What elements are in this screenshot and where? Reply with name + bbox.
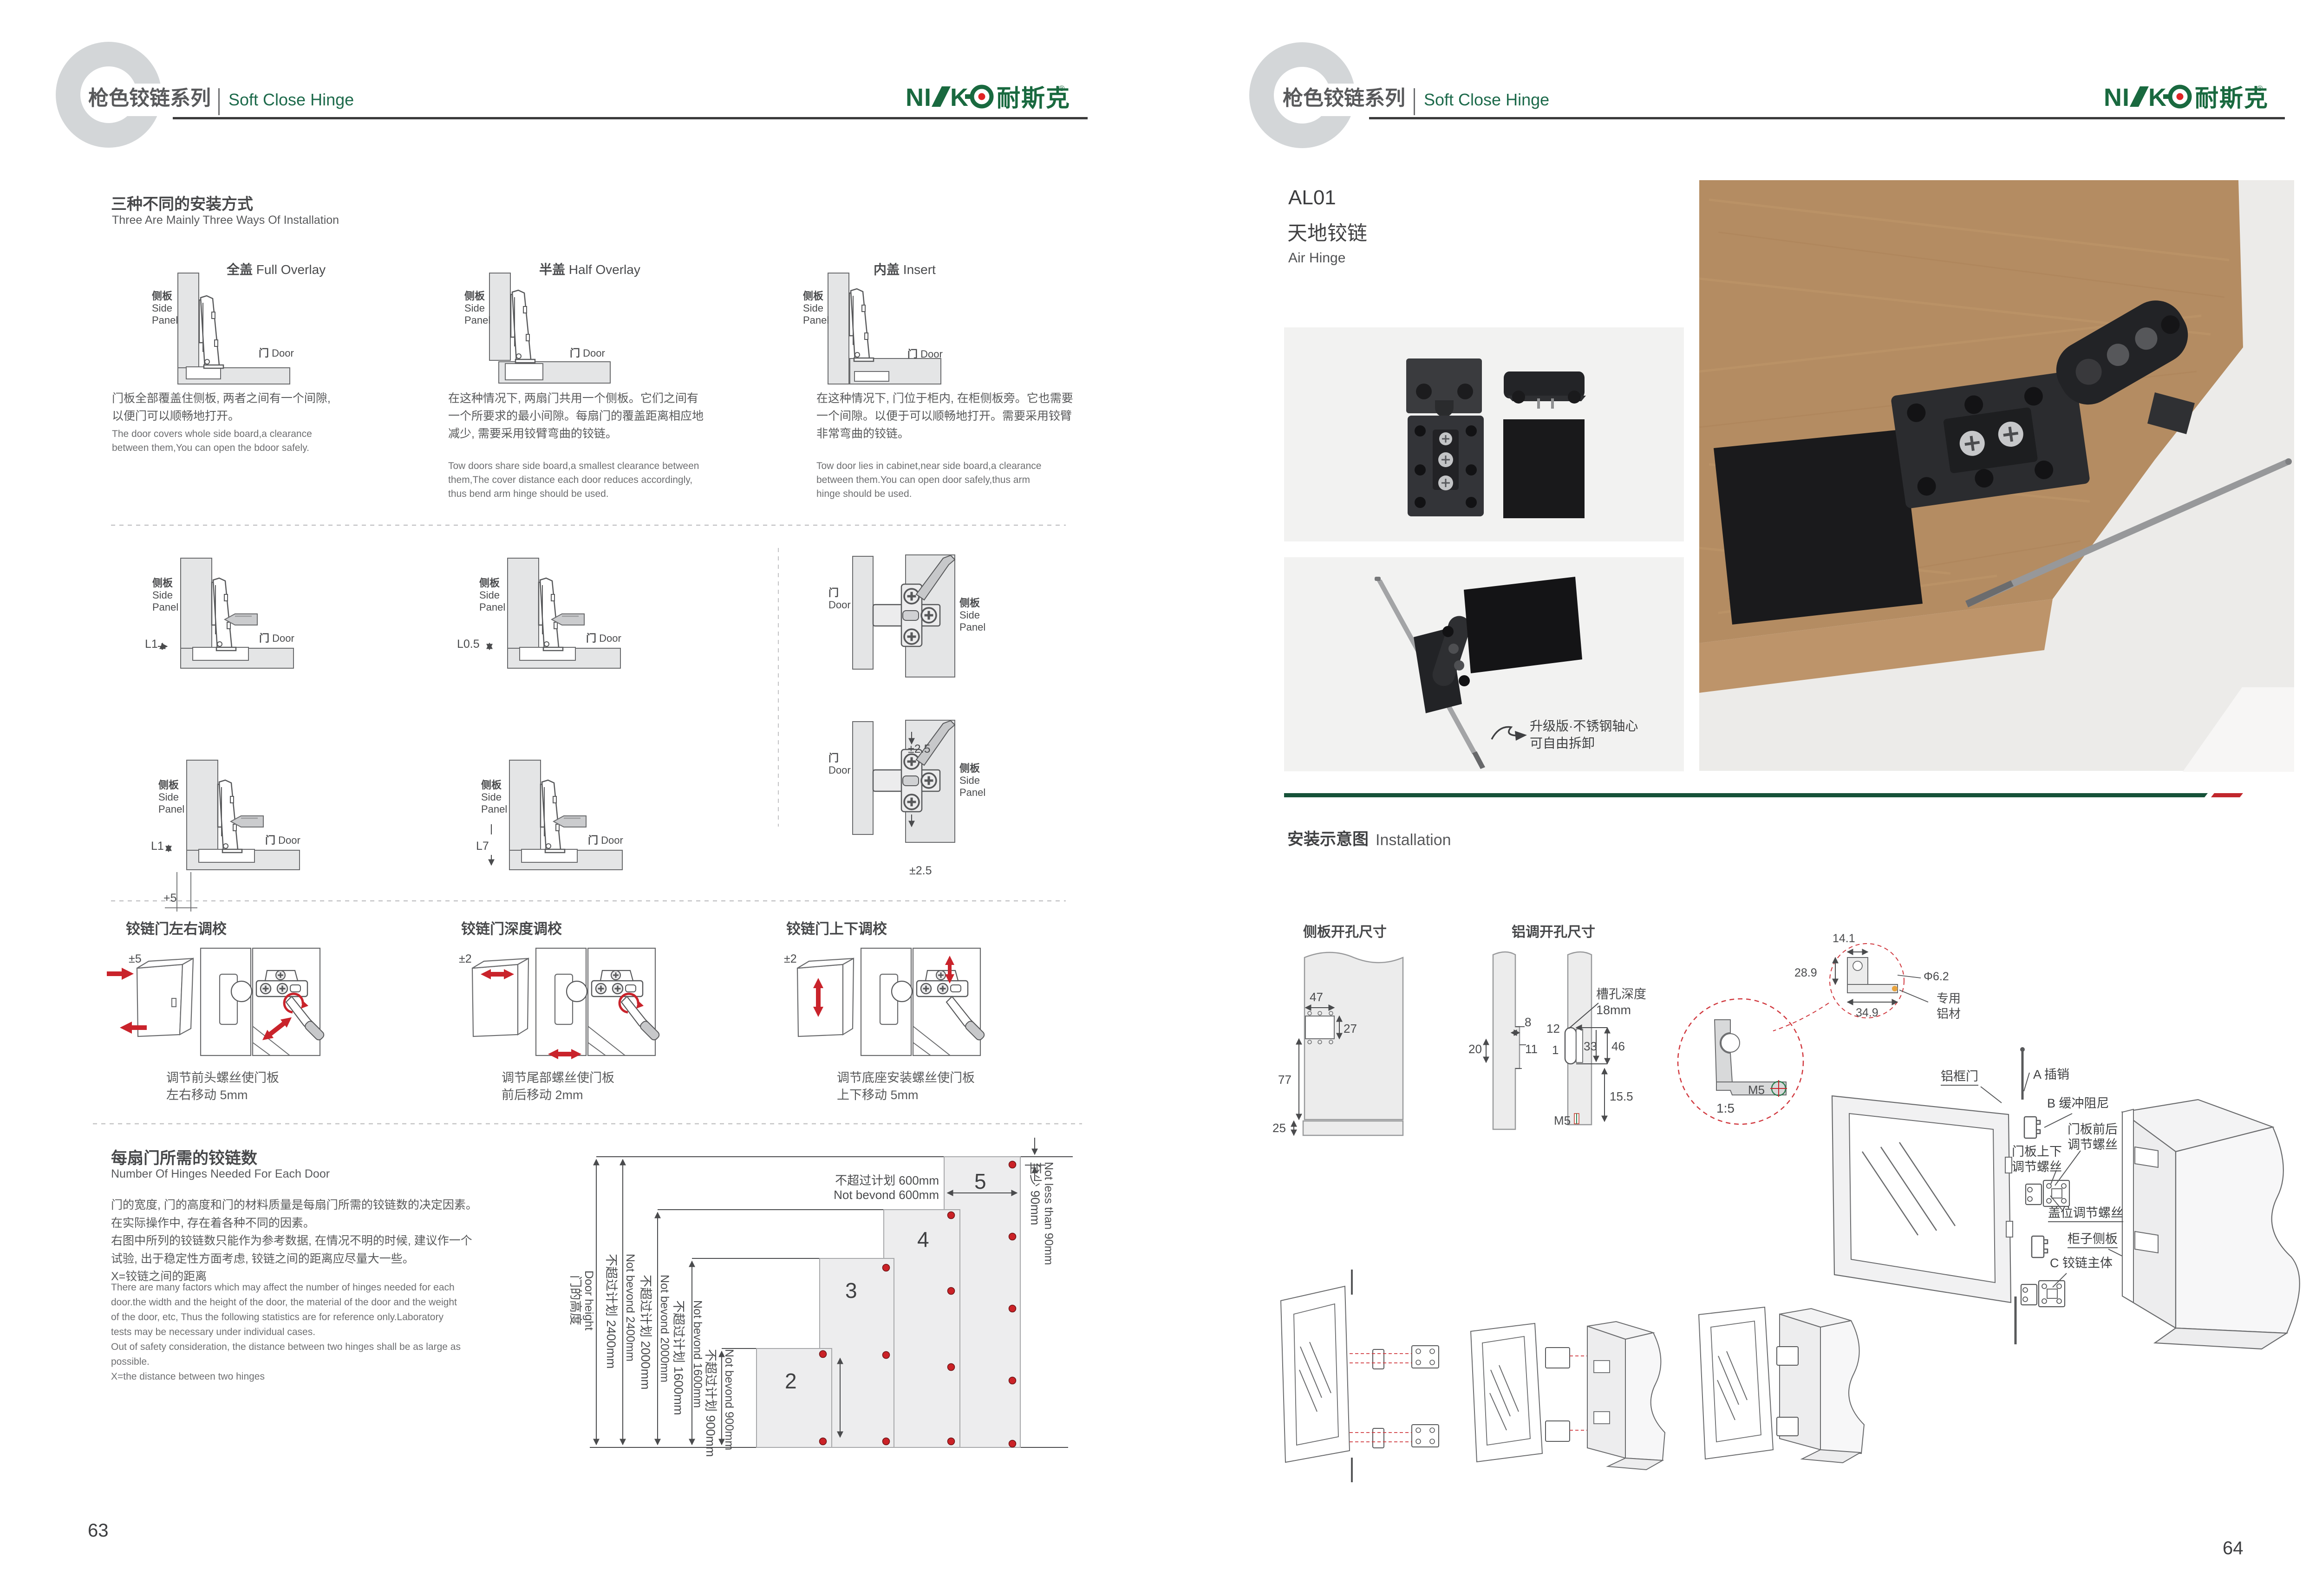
svg-text:不超过计划 2000mm: 不超过计划 2000mm (639, 1275, 652, 1390)
svg-text:NI: NI (906, 84, 932, 111)
svg-text:®: ® (2257, 84, 2263, 93)
svg-text:不超过计划 900mm: 不超过计划 900mm (704, 1349, 717, 1457)
svg-text:4: 4 (917, 1227, 929, 1251)
svg-text:Not bevond 2400mm: Not bevond 2400mm (624, 1254, 637, 1361)
svg-text:NI: NI (2104, 84, 2130, 111)
svg-text:5: 5 (974, 1169, 986, 1193)
svg-text:3: 3 (845, 1278, 857, 1303)
svg-text:不超过计划 1600mm: 不超过计划 1600mm (672, 1300, 685, 1415)
svg-text:Not bevond 1600mm: Not bevond 1600mm (691, 1300, 704, 1408)
svg-text:Door height: Door height (582, 1270, 595, 1330)
svg-text:门的高度: 门的高度 (568, 1275, 582, 1325)
svg-text:®: ® (1059, 84, 1065, 93)
svg-text:至少 90mm: 至少 90mm (1028, 1162, 1042, 1225)
svg-text:Not less than 90mm: Not less than 90mm (1042, 1162, 1055, 1265)
svg-text:Not bevond 900mm: Not bevond 900mm (723, 1349, 736, 1450)
svg-text:不超过计划 2400mm: 不超过计划 2400mm (604, 1254, 618, 1369)
svg-text:Not bevond 2000mm: Not bevond 2000mm (658, 1275, 671, 1382)
svg-text:2: 2 (785, 1369, 797, 1393)
